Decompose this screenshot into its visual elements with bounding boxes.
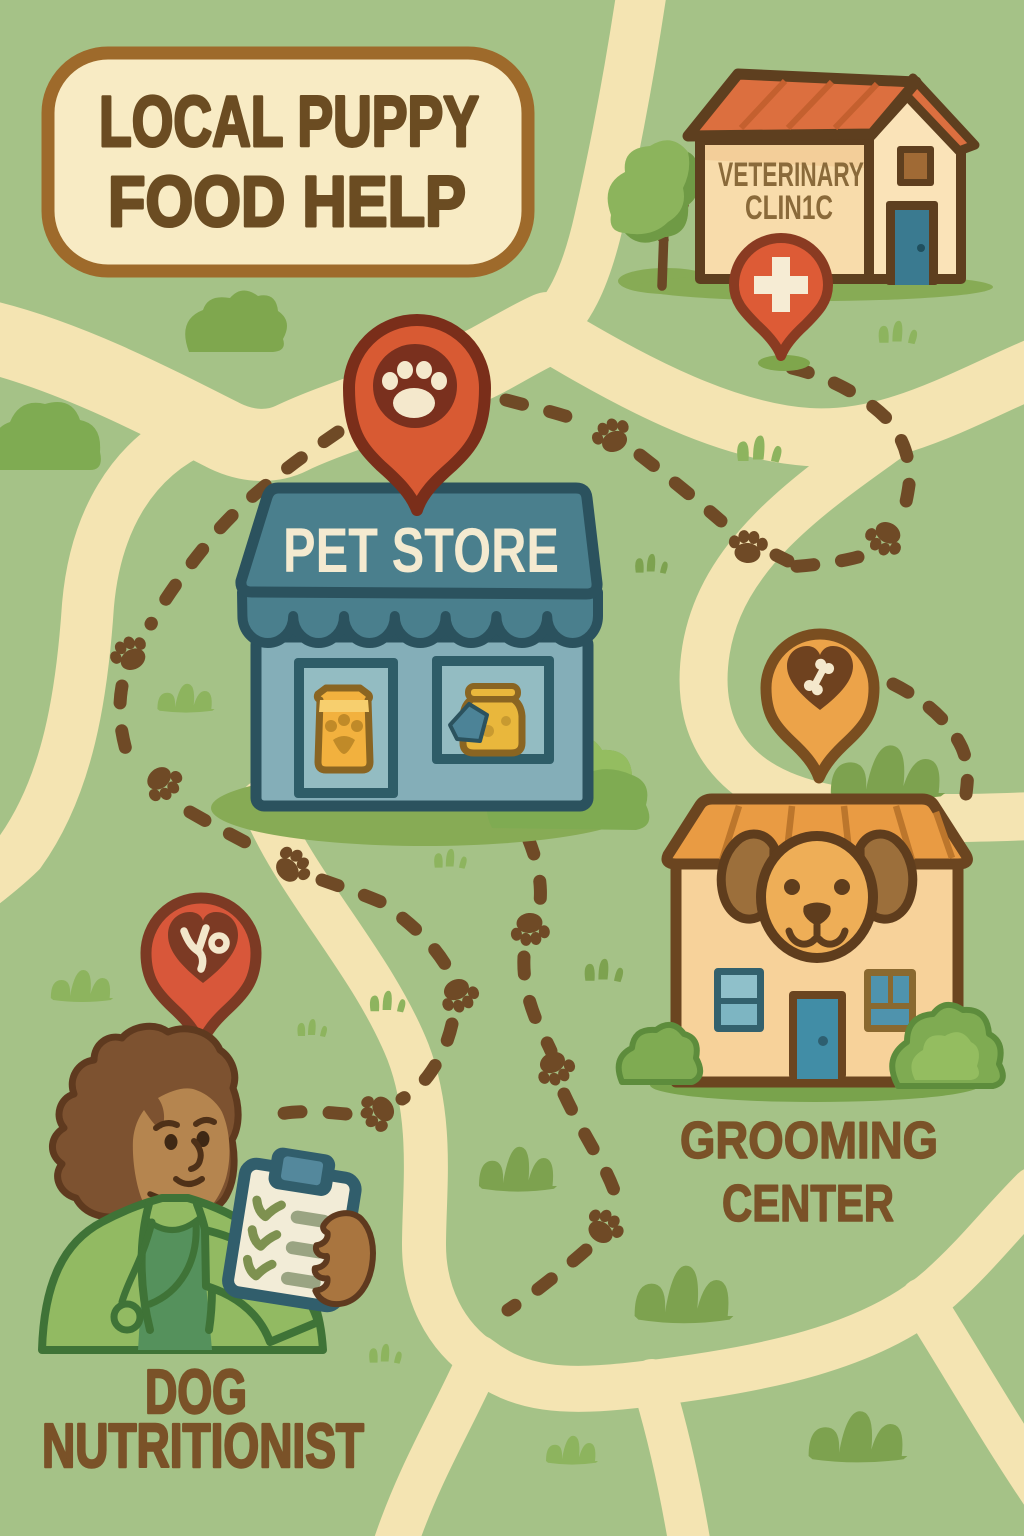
svg-text:CLIN1C: CLIN1C — [745, 189, 833, 227]
svg-text:FOOD HELP: FOOD HELP — [108, 163, 466, 242]
svg-text:NUTRITIONIST: NUTRITIONIST — [42, 1412, 364, 1481]
svg-text:CENTER: CENTER — [722, 1175, 894, 1233]
svg-text:GROOMING: GROOMING — [680, 1112, 938, 1170]
svg-text:LOCAL PUPPY: LOCAL PUPPY — [99, 83, 479, 162]
svg-text:PET STORE: PET STORE — [283, 516, 559, 586]
